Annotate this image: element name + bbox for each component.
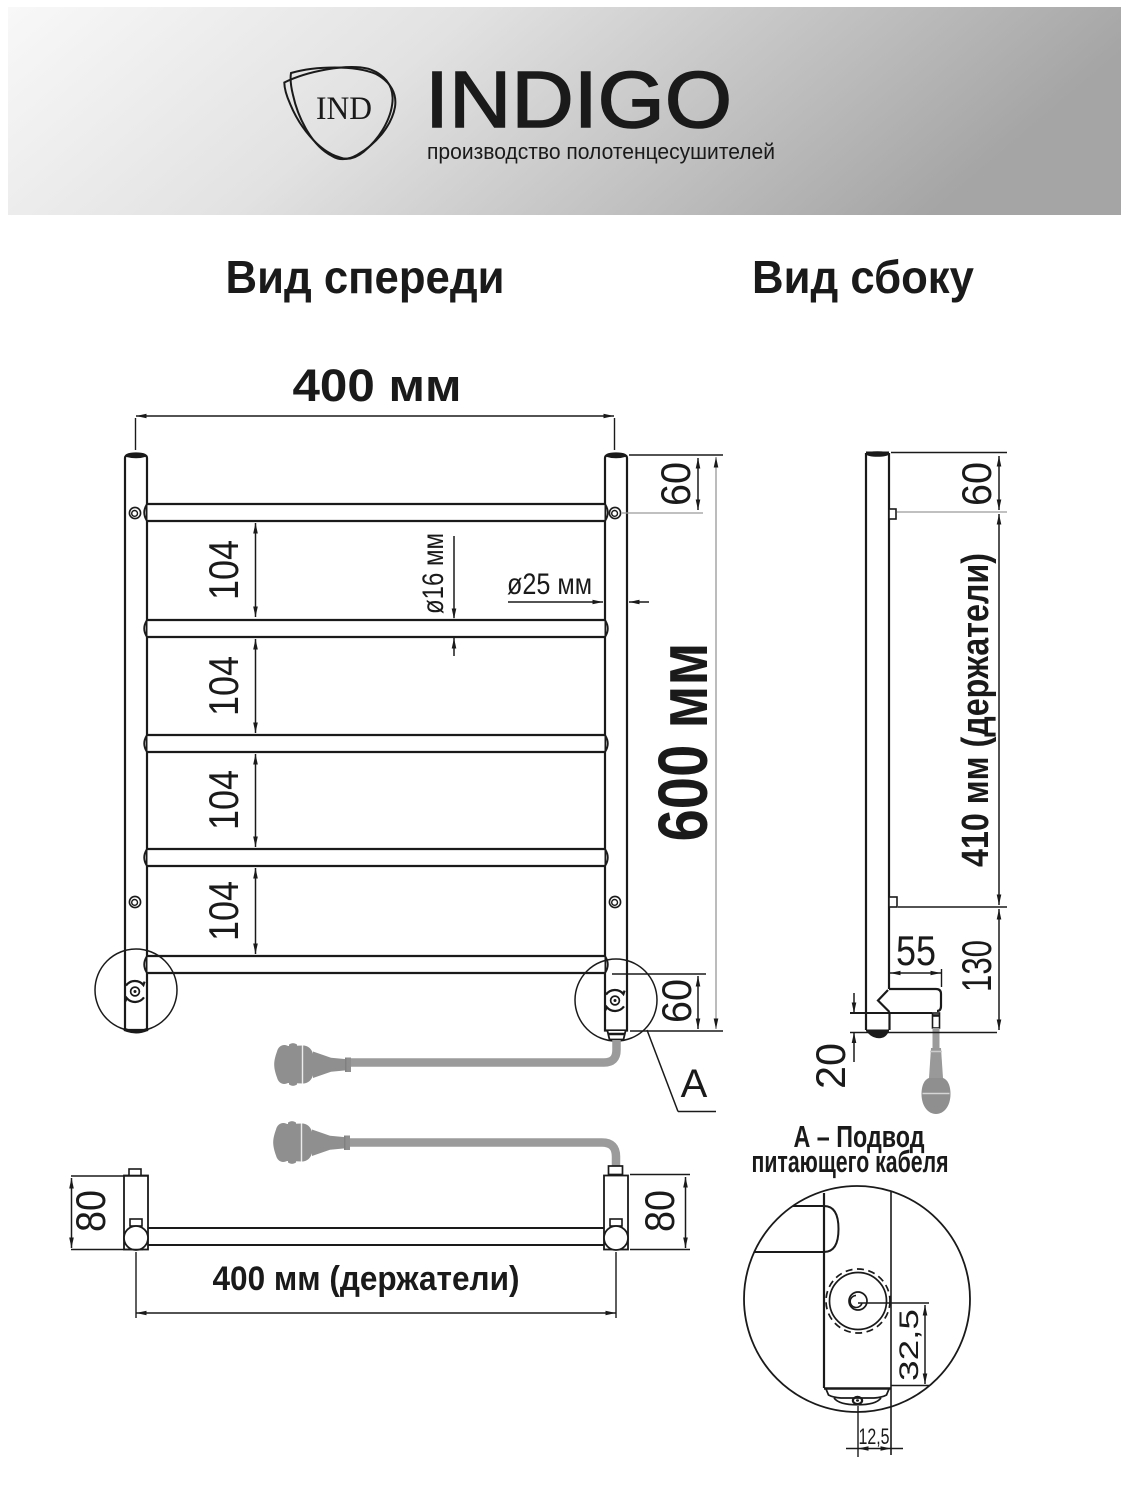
svg-text:питающего кабеля: питающего кабеля bbox=[752, 1144, 949, 1179]
svg-text:А: А bbox=[681, 1062, 708, 1106]
svg-text:32,5: 32,5 bbox=[894, 1309, 924, 1381]
svg-text:ø16 мм: ø16 мм bbox=[417, 533, 450, 614]
svg-text:55: 55 bbox=[896, 927, 936, 974]
svg-text:IND: IND bbox=[316, 91, 372, 127]
svg-text:Вид спереди: Вид спереди bbox=[226, 251, 505, 303]
svg-text:12,5: 12,5 bbox=[859, 1424, 890, 1449]
svg-text:60: 60 bbox=[953, 462, 1000, 506]
svg-text:20: 20 bbox=[807, 1043, 854, 1089]
svg-text:400 мм (держатели): 400 мм (держатели) bbox=[213, 1260, 520, 1298]
svg-text:410 мм (держатели): 410 мм (держатели) bbox=[955, 553, 997, 867]
svg-text:130: 130 bbox=[953, 940, 1000, 992]
svg-text:400 мм: 400 мм bbox=[293, 360, 462, 411]
svg-text:60: 60 bbox=[652, 462, 699, 506]
svg-text:INDIGO: INDIGO bbox=[425, 55, 732, 144]
svg-text:производство полотенцесушителе: производство полотенцесушителей bbox=[427, 139, 775, 164]
svg-text:104: 104 bbox=[200, 540, 247, 600]
svg-text:Вид сбоку: Вид сбоку bbox=[752, 251, 974, 303]
svg-text:104: 104 bbox=[200, 881, 247, 941]
svg-text:104: 104 bbox=[200, 656, 247, 716]
svg-text:60: 60 bbox=[653, 979, 700, 1023]
svg-text:ø25 мм: ø25 мм bbox=[507, 568, 592, 601]
svg-text:600 мм: 600 мм bbox=[644, 643, 722, 842]
svg-text:80: 80 bbox=[67, 1190, 114, 1232]
svg-text:104: 104 bbox=[200, 770, 247, 830]
svg-text:80: 80 bbox=[636, 1190, 683, 1232]
